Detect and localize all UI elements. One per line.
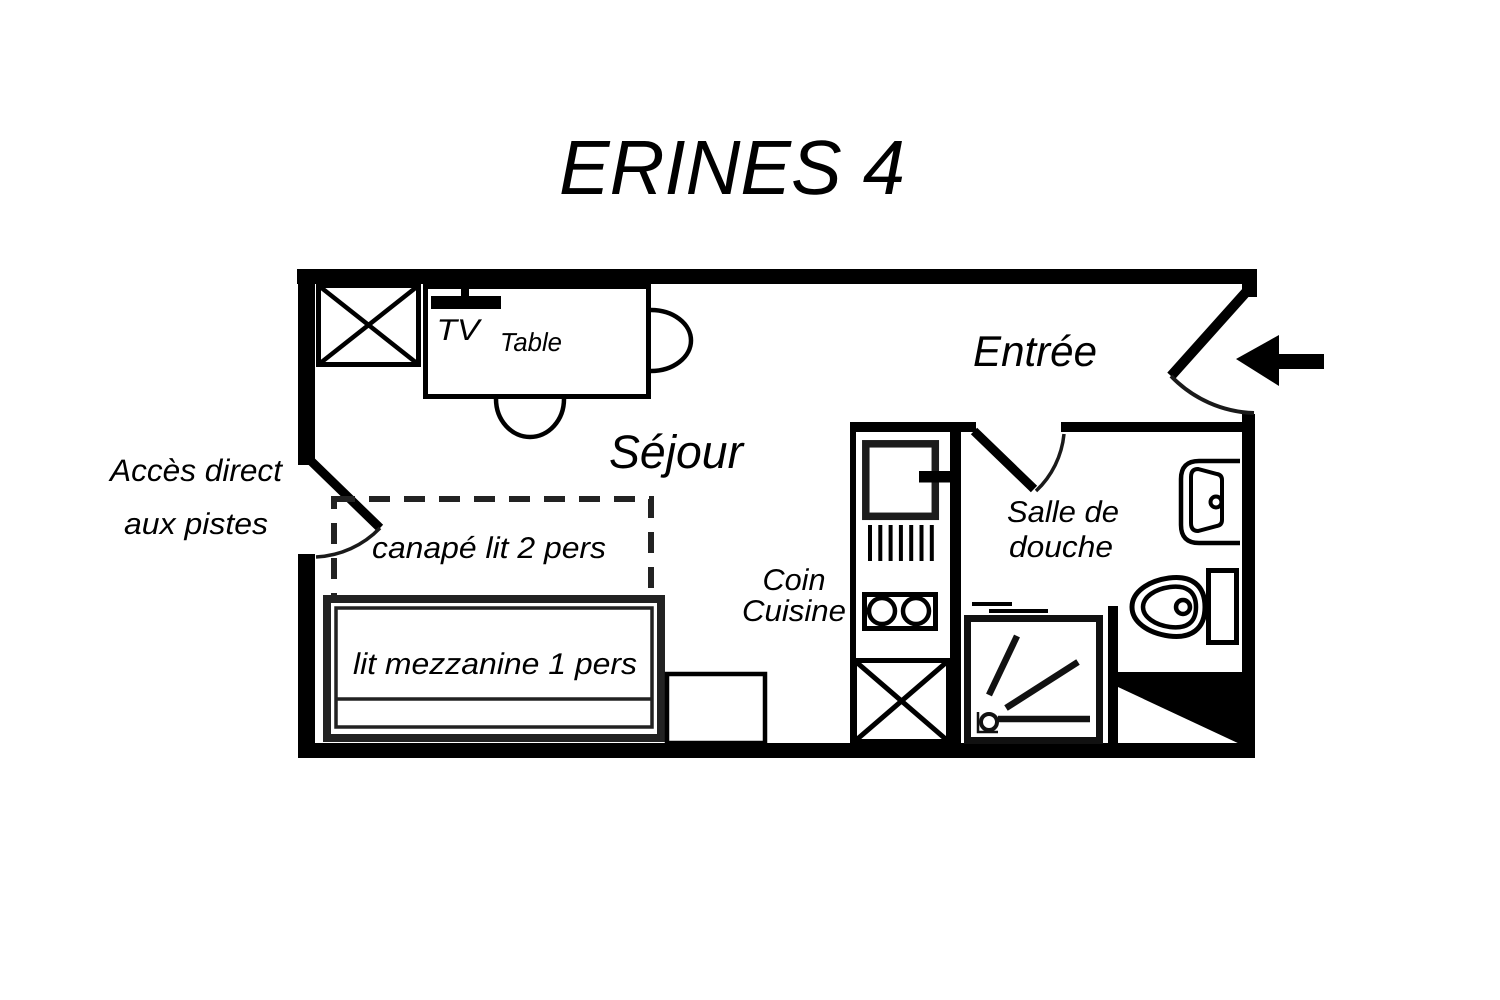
- svg-text:ERINES 4: ERINES 4: [559, 125, 905, 211]
- svg-text:Salle de: Salle de: [1007, 496, 1119, 529]
- svg-text:Coin: Coin: [763, 564, 826, 597]
- svg-text:Séjour: Séjour: [609, 425, 745, 478]
- svg-text:Table: Table: [500, 327, 562, 357]
- svg-text:Cuisine: Cuisine: [742, 595, 846, 628]
- svg-text:lit mezzanine 1 pers: lit mezzanine 1 pers: [353, 648, 637, 681]
- svg-text:canapé lit 2 pers: canapé lit 2 pers: [372, 532, 606, 565]
- svg-text:douche: douche: [1009, 531, 1113, 564]
- svg-text:Accès direct: Accès direct: [108, 453, 283, 488]
- svg-text:Entrée: Entrée: [973, 328, 1097, 376]
- svg-text:aux pistes: aux pistes: [124, 508, 268, 541]
- svg-text:TV: TV: [437, 314, 483, 347]
